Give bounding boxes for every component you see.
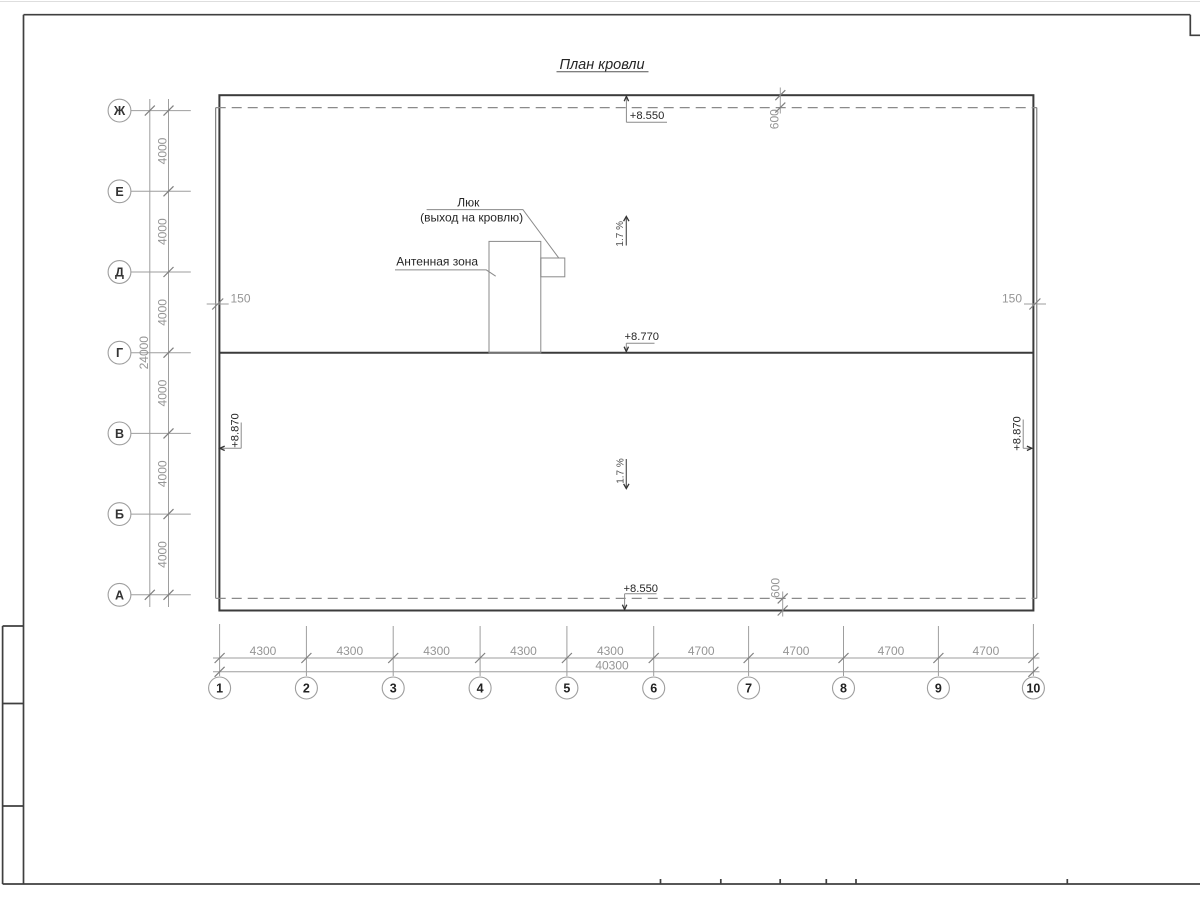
svg-text:План кровли: План кровли bbox=[559, 57, 644, 73]
svg-text:600: 600 bbox=[769, 578, 783, 598]
svg-text:Е: Е bbox=[115, 185, 123, 199]
svg-text:7: 7 bbox=[745, 682, 752, 696]
svg-text:8: 8 bbox=[840, 682, 847, 696]
svg-text:3: 3 bbox=[390, 682, 397, 696]
svg-text:4700: 4700 bbox=[688, 644, 715, 658]
svg-text:600: 600 bbox=[767, 109, 781, 129]
svg-text:4000: 4000 bbox=[155, 460, 169, 487]
svg-text:+8.870: +8.870 bbox=[1012, 416, 1024, 451]
svg-text:Люк: Люк bbox=[457, 195, 480, 209]
svg-text:+8.550: +8.550 bbox=[624, 583, 659, 595]
svg-text:Б: Б bbox=[115, 508, 124, 522]
svg-text:150: 150 bbox=[231, 291, 251, 305]
svg-text:4700: 4700 bbox=[878, 644, 905, 658]
svg-text:4700: 4700 bbox=[973, 644, 1000, 658]
svg-text:4000: 4000 bbox=[155, 218, 169, 245]
svg-text:4: 4 bbox=[477, 682, 484, 696]
svg-text:+8.550: +8.550 bbox=[630, 110, 665, 122]
svg-text:В: В bbox=[115, 427, 124, 441]
svg-text:40300: 40300 bbox=[595, 658, 629, 672]
svg-text:4000: 4000 bbox=[155, 541, 169, 568]
svg-text:4300: 4300 bbox=[423, 644, 450, 658]
svg-text:4300: 4300 bbox=[597, 644, 624, 658]
svg-text:4300: 4300 bbox=[510, 644, 537, 658]
svg-text:1.7 %: 1.7 % bbox=[615, 458, 626, 484]
svg-text:6: 6 bbox=[650, 682, 657, 696]
svg-text:4000: 4000 bbox=[155, 379, 169, 406]
svg-text:150: 150 bbox=[1002, 291, 1022, 305]
svg-text:Антенная зона: Антенная зона bbox=[396, 254, 478, 268]
svg-text:Ж: Ж bbox=[113, 104, 126, 118]
svg-text:+8.870: +8.870 bbox=[230, 413, 242, 448]
svg-text:24000: 24000 bbox=[137, 336, 151, 370]
svg-text:4700: 4700 bbox=[783, 644, 810, 658]
svg-text:4300: 4300 bbox=[250, 644, 277, 658]
svg-text:+8.770: +8.770 bbox=[625, 331, 660, 343]
svg-text:5: 5 bbox=[563, 682, 570, 696]
svg-text:4000: 4000 bbox=[155, 137, 169, 164]
svg-text:(выход на кровлю): (выход на кровлю) bbox=[420, 210, 523, 224]
svg-text:Д: Д bbox=[115, 266, 124, 280]
svg-text:4300: 4300 bbox=[336, 644, 363, 658]
svg-text:4000: 4000 bbox=[155, 299, 169, 326]
svg-text:2: 2 bbox=[303, 682, 310, 696]
svg-text:9: 9 bbox=[935, 682, 942, 696]
svg-text:1: 1 bbox=[216, 682, 223, 696]
svg-text:10: 10 bbox=[1026, 682, 1040, 696]
svg-text:1.7 %: 1.7 % bbox=[615, 221, 626, 247]
svg-text:Г: Г bbox=[116, 346, 123, 360]
svg-text:А: А bbox=[115, 588, 124, 602]
